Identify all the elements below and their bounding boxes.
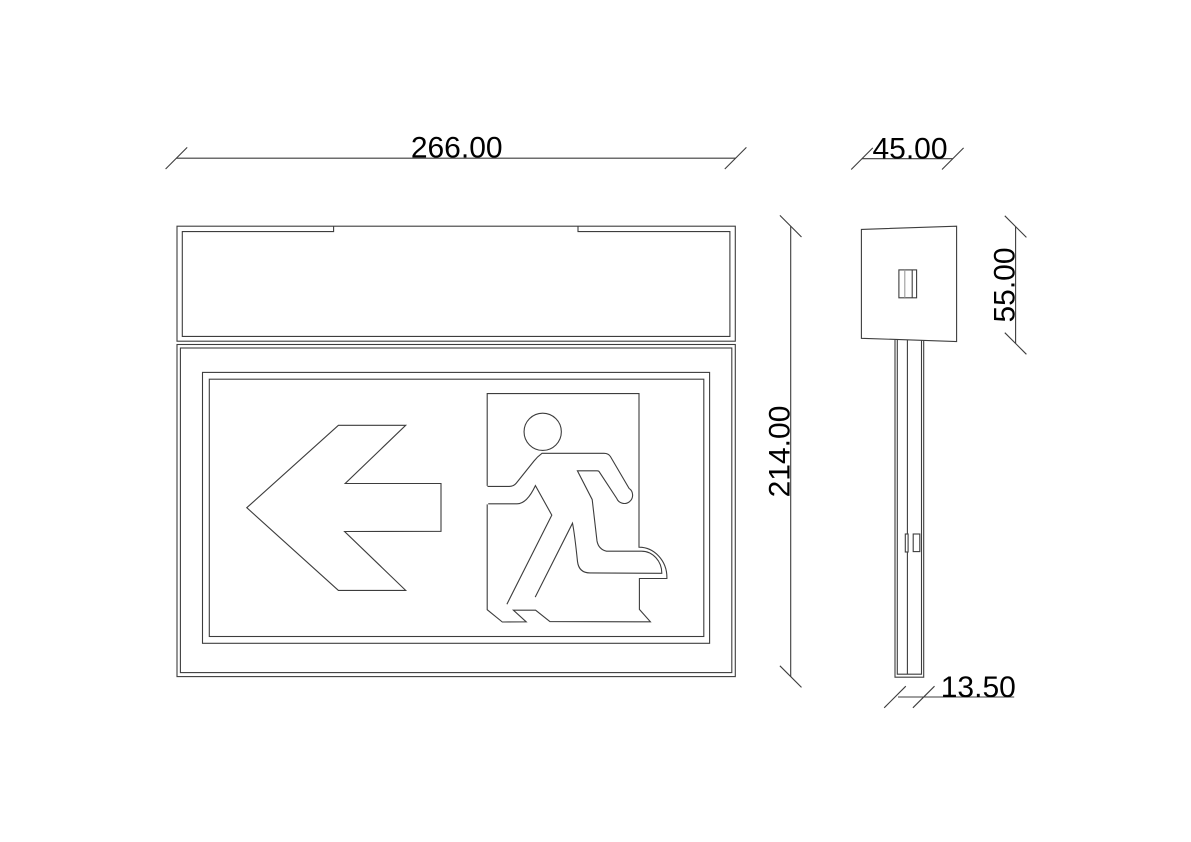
svg-text:266.00: 266.00: [411, 132, 503, 165]
svg-text:55.00: 55.00: [989, 247, 1022, 322]
svg-text:13.50: 13.50: [941, 671, 1016, 704]
svg-text:45.00: 45.00: [872, 132, 947, 165]
svg-text:214.00: 214.00: [764, 406, 797, 498]
